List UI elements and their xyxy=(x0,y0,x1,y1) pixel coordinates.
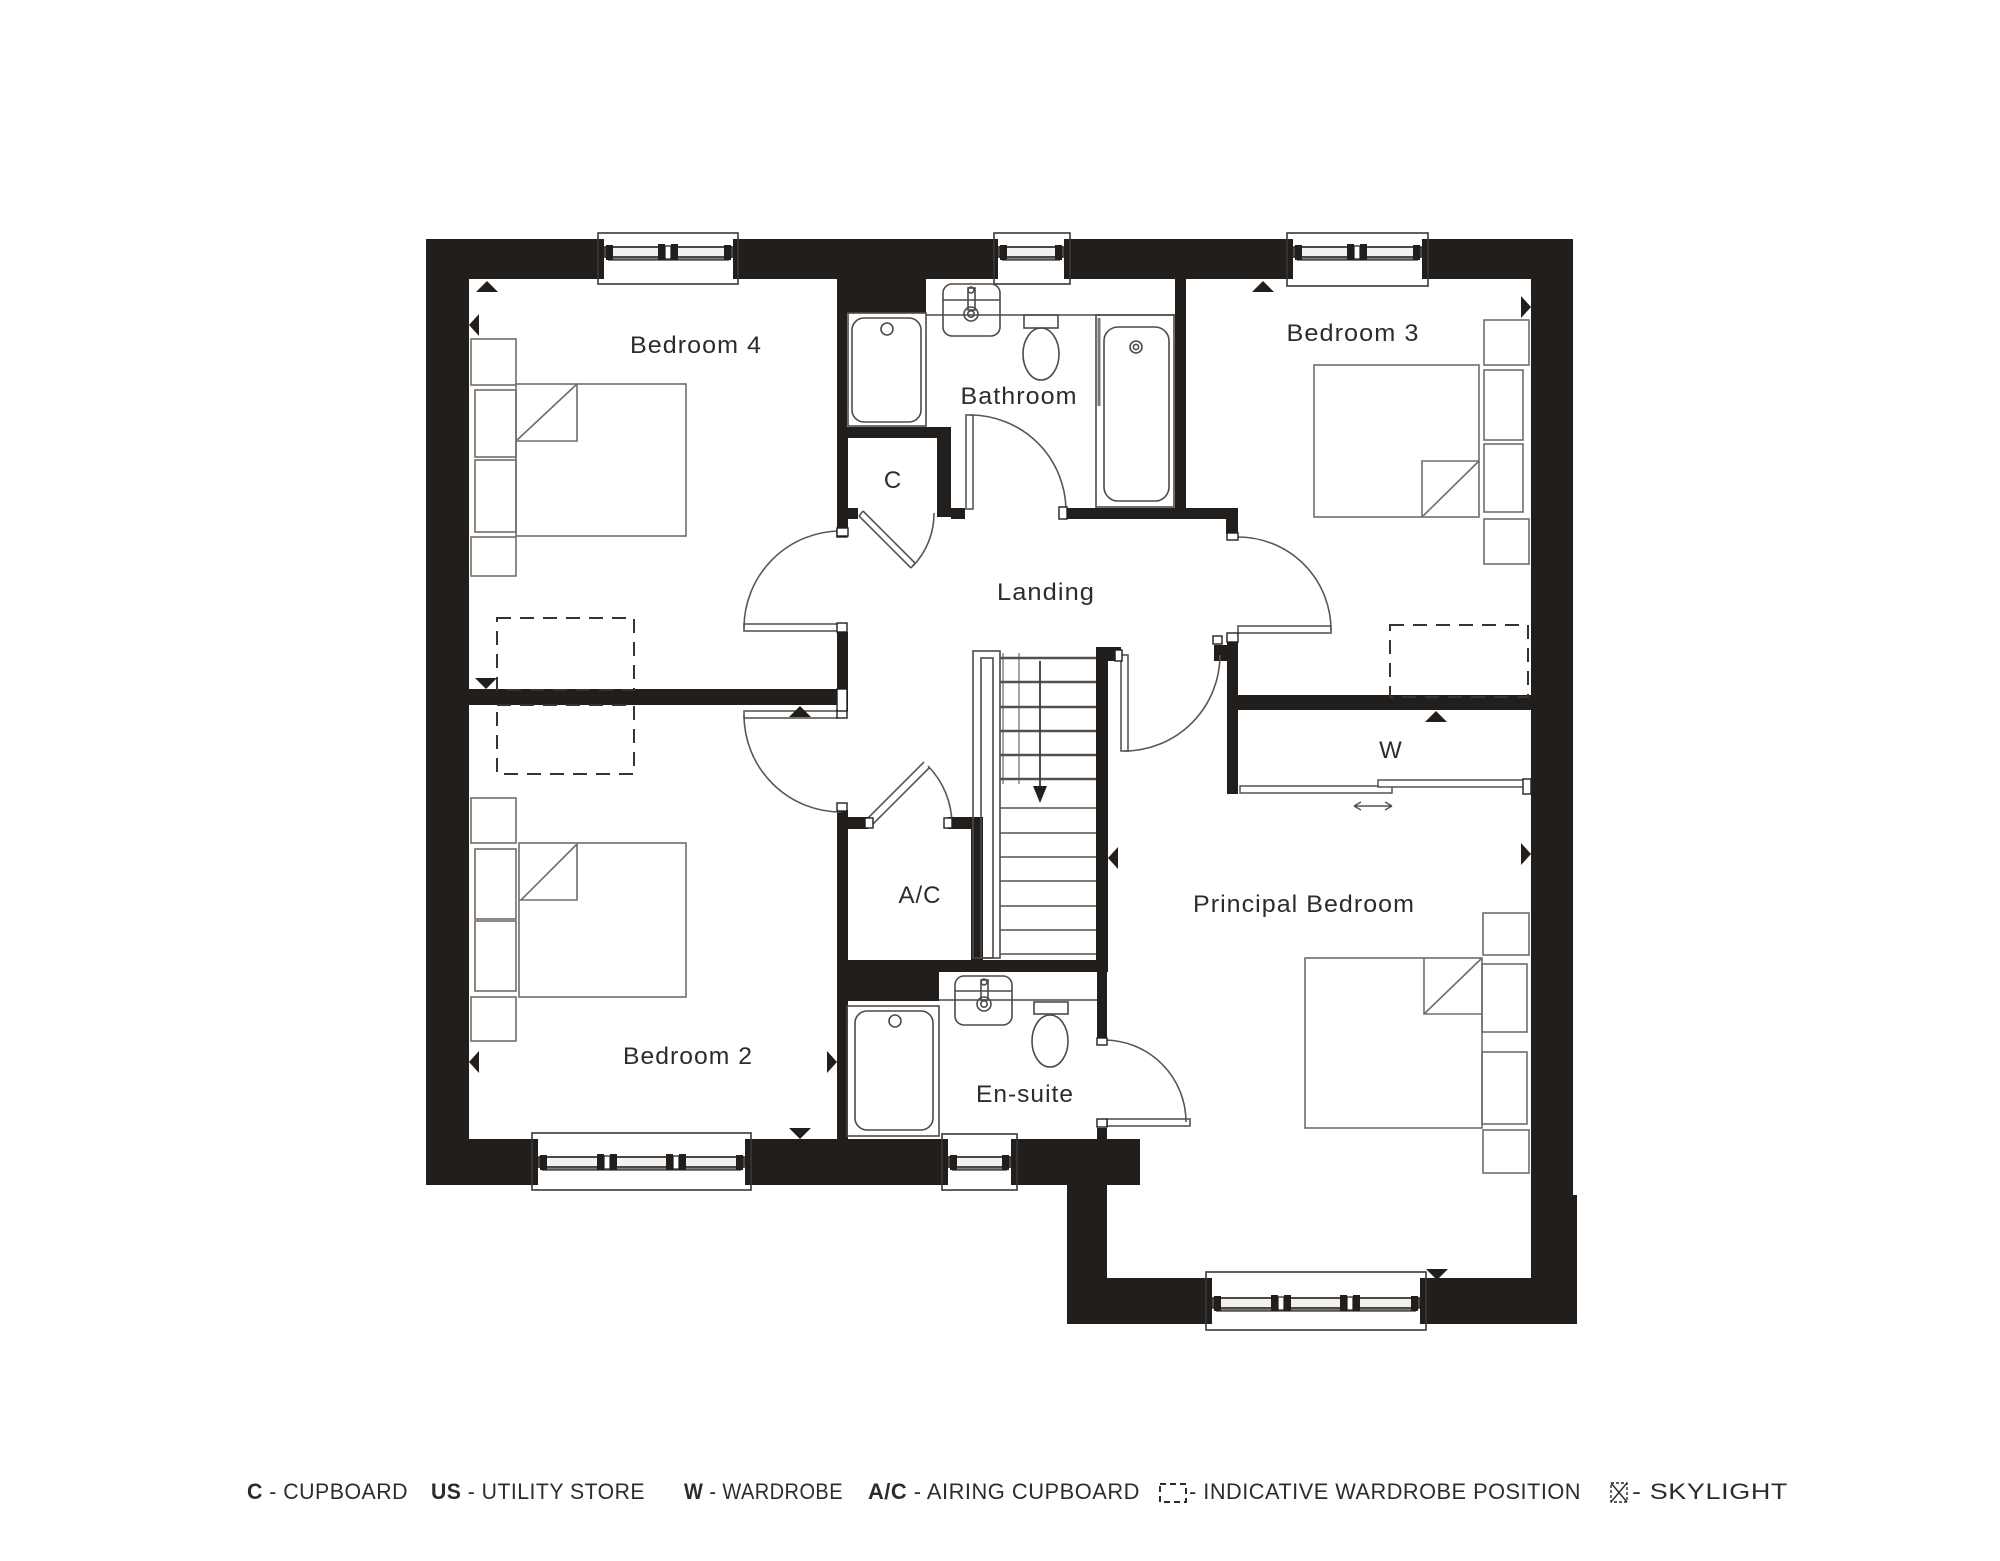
svg-text:Bedroom 3: Bedroom 3 xyxy=(1287,320,1420,347)
svg-text:En-suite: En-suite xyxy=(976,1081,1074,1108)
svg-text:US - UTILITY STORE: US - UTILITY STORE xyxy=(431,1479,645,1504)
svg-text:C: C xyxy=(884,467,902,494)
svg-text:A/C - AIRING CUPBOARD: A/C - AIRING CUPBOARD xyxy=(868,1479,1140,1504)
svg-text:Bathroom: Bathroom xyxy=(961,383,1078,410)
svg-text:C - CUPBOARD: C - CUPBOARD xyxy=(247,1479,408,1504)
svg-text:- INDICATIVE WARDROBE POSITION: - INDICATIVE WARDROBE POSITION xyxy=(1189,1479,1581,1504)
svg-text:Principal Bedroom: Principal Bedroom xyxy=(1193,891,1415,918)
svg-text:A/C: A/C xyxy=(898,882,941,909)
svg-text:Landing: Landing xyxy=(997,579,1095,606)
svg-text:Bedroom 4: Bedroom 4 xyxy=(630,332,762,359)
svg-text:Bedroom 2: Bedroom 2 xyxy=(623,1043,753,1070)
svg-text:- SKYLIGHT: - SKYLIGHT xyxy=(1632,1479,1788,1504)
svg-text:W - WARDROBE: W - WARDROBE xyxy=(684,1479,843,1504)
svg-text:W: W xyxy=(1379,737,1403,764)
